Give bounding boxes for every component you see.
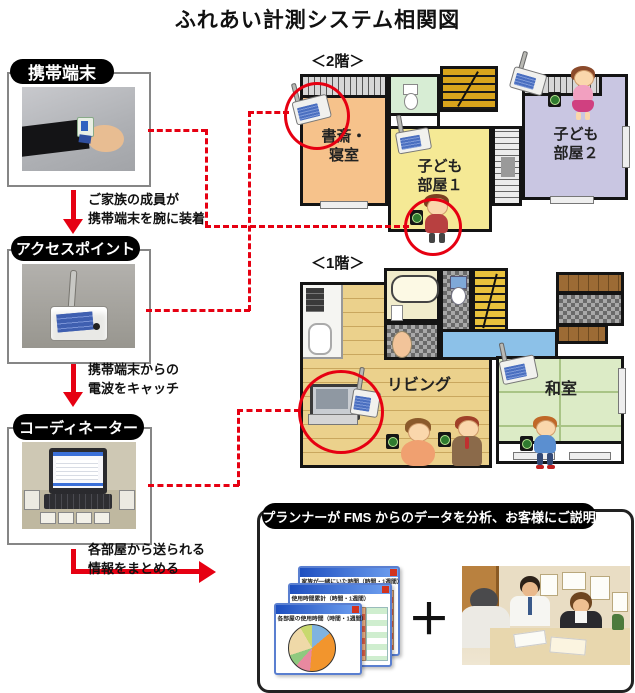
flow-arrow-2-head xyxy=(63,392,83,407)
dashed-link-accesspoint xyxy=(248,111,289,114)
stove xyxy=(306,288,324,312)
entrance-floor xyxy=(556,292,624,326)
dashed-link-coordinator xyxy=(237,409,240,486)
person-mother xyxy=(394,418,442,468)
wrist-device-face xyxy=(81,121,88,131)
person-father xyxy=(446,416,488,468)
dashed-link-coordinator xyxy=(237,409,300,412)
caption-line: 携帯端末を腕に装着 xyxy=(88,210,205,229)
paper xyxy=(549,636,586,655)
label-coordinator: コーディネーター xyxy=(13,414,144,440)
label-planner: プランナーが FMS からのデータを分析、お客様にご説明 xyxy=(262,503,596,529)
caption-access-point: 携帯端末からの 電波をキャッチ xyxy=(88,361,179,399)
stairs-line xyxy=(457,71,479,107)
laptop-screen xyxy=(49,448,107,494)
flow-arrow-1 xyxy=(71,190,76,220)
laptop-keyboard xyxy=(44,494,112,509)
access-point-device-icon xyxy=(509,60,547,96)
sink xyxy=(308,323,332,355)
device-port xyxy=(93,323,100,330)
room-name-line: 部屋２ xyxy=(532,145,620,164)
closet-box xyxy=(501,157,515,177)
receiver-unit xyxy=(119,490,135,510)
wall-frame xyxy=(590,576,610,600)
flow-arrow-1-head xyxy=(63,219,83,234)
basin xyxy=(392,331,412,358)
flow-arrow-2 xyxy=(71,364,76,393)
room-name-line: 部屋１ xyxy=(396,177,484,196)
window xyxy=(569,452,611,460)
caption-coordinator: 各部屋から送られる 情報をまとめる xyxy=(88,541,205,579)
woman-shirt xyxy=(575,611,587,623)
mobile-terminal-photo xyxy=(22,87,135,171)
receiver-unit xyxy=(94,512,110,524)
access-point-device-icon xyxy=(50,306,108,341)
close-icon xyxy=(352,606,359,613)
pie-chart xyxy=(288,624,336,672)
diagram-canvas: ふれあい計測システム相関図 携帯端末 ご家族の成員が 携帯端末を腕に装着 アクセ… xyxy=(0,0,635,693)
window-title: 使用時間累計（時間・1週間） xyxy=(290,594,362,603)
room-name-kids2: 子ども 部屋２ xyxy=(532,126,620,164)
receiver-unit xyxy=(24,490,40,510)
floor1-label: ＜1階＞ xyxy=(311,252,364,273)
page-title: ふれあい計測システム相関図 xyxy=(0,4,635,34)
caption-mobile-terminal: ご家族の成員が 携帯端末を腕に装着 xyxy=(88,191,205,229)
wall-frame xyxy=(540,574,558,596)
window xyxy=(550,196,594,204)
closet xyxy=(492,126,522,206)
man-face xyxy=(522,582,538,597)
close-icon xyxy=(390,569,397,576)
stairs-line xyxy=(482,274,497,329)
window-titlebar xyxy=(300,568,398,577)
floor2-label: ＜2階＞ xyxy=(311,50,364,71)
person-girl xyxy=(564,66,600,122)
dashed-link-terminal xyxy=(205,225,409,228)
access-point-photo xyxy=(22,264,135,348)
window-title: 各部屋の使用時間（時間・1週間） xyxy=(276,614,336,623)
hall-storage xyxy=(556,324,608,344)
wall-frame xyxy=(612,592,628,612)
bathtub xyxy=(391,275,439,303)
device-label xyxy=(56,311,93,332)
screen-titlebar xyxy=(53,452,103,456)
man-tie xyxy=(528,597,532,615)
table-col xyxy=(366,607,388,661)
caption-line: 電波をキャッチ xyxy=(88,380,179,399)
toilet-bowl xyxy=(451,287,466,305)
room-name-washitsu: 和室 xyxy=(526,380,596,400)
floorplan-2f: 書斎・ 寝室 子ども 部屋１ 子ども 部屋２ xyxy=(300,66,632,242)
report-window-room-usage: 各部屋の使用時間（時間・1週間） xyxy=(274,603,362,675)
receiver-unit xyxy=(76,512,92,524)
coordinator-box xyxy=(7,427,152,545)
room-toilet-1f xyxy=(440,268,472,332)
access-point-device-icon xyxy=(394,121,430,154)
wall-frame xyxy=(562,572,586,590)
screen-content xyxy=(53,452,103,488)
label-mobile-terminal: 携帯端末 xyxy=(10,59,114,84)
receiver-unit xyxy=(40,512,56,524)
room-toilet-2f xyxy=(388,74,440,116)
highlight-circle-laptop xyxy=(298,370,384,454)
caption-line: 情報をまとめる xyxy=(88,560,205,579)
coordinator-photo xyxy=(22,442,136,529)
room-name-line: 子ども xyxy=(532,126,620,145)
dashed-link-coordinator xyxy=(148,484,239,487)
room-name-living: リビング xyxy=(384,376,454,396)
wrist-strap xyxy=(79,134,92,144)
floorplan-1f: リビング 和室 xyxy=(300,268,635,468)
mobile-terminal-box xyxy=(7,72,151,187)
window-titlebar xyxy=(276,605,360,614)
close-icon xyxy=(382,586,389,593)
window-titlebar xyxy=(290,585,390,594)
consultation-photo xyxy=(462,566,630,665)
washstand xyxy=(391,305,403,321)
wrist-device-icon xyxy=(438,432,451,447)
highlight-circle-accesspoint xyxy=(284,82,350,150)
receiver-unit xyxy=(58,512,74,524)
stairs-2f xyxy=(440,66,498,112)
plant xyxy=(612,614,624,630)
toilet-bowl xyxy=(404,93,418,110)
wrist-device-icon xyxy=(548,92,561,107)
stairs-1f xyxy=(472,268,508,332)
entrance-deck xyxy=(556,272,624,294)
bathroom xyxy=(384,268,440,322)
room-name-line: 子ども xyxy=(396,158,484,177)
window xyxy=(622,126,630,168)
screen-chart xyxy=(56,460,98,480)
wrist-device-icon xyxy=(386,434,399,449)
room-name-kids1: 子ども 部屋１ xyxy=(396,158,484,196)
person-boy-washitsu xyxy=(528,416,562,474)
washroom xyxy=(384,322,440,360)
caption-line: ご家族の成員が xyxy=(88,191,205,210)
kitchen xyxy=(303,285,343,359)
highlight-circle-boy xyxy=(404,198,462,256)
dashed-link-terminal xyxy=(148,129,207,132)
dashed-link-terminal xyxy=(205,129,208,227)
window xyxy=(320,201,368,209)
screen-taskbar xyxy=(53,483,103,486)
label-access-point: アクセスポイント xyxy=(11,236,140,261)
wrist-device-icon xyxy=(520,436,533,451)
window xyxy=(618,368,626,414)
plus-sign: ＋ xyxy=(408,586,450,647)
antenna xyxy=(68,270,78,310)
dashed-link-accesspoint xyxy=(146,309,250,312)
caption-line: 各部屋から送られる xyxy=(88,541,205,560)
dashed-link-accesspoint xyxy=(248,111,251,311)
caption-line: 携帯端末からの xyxy=(88,361,179,380)
access-point-box xyxy=(7,249,151,364)
